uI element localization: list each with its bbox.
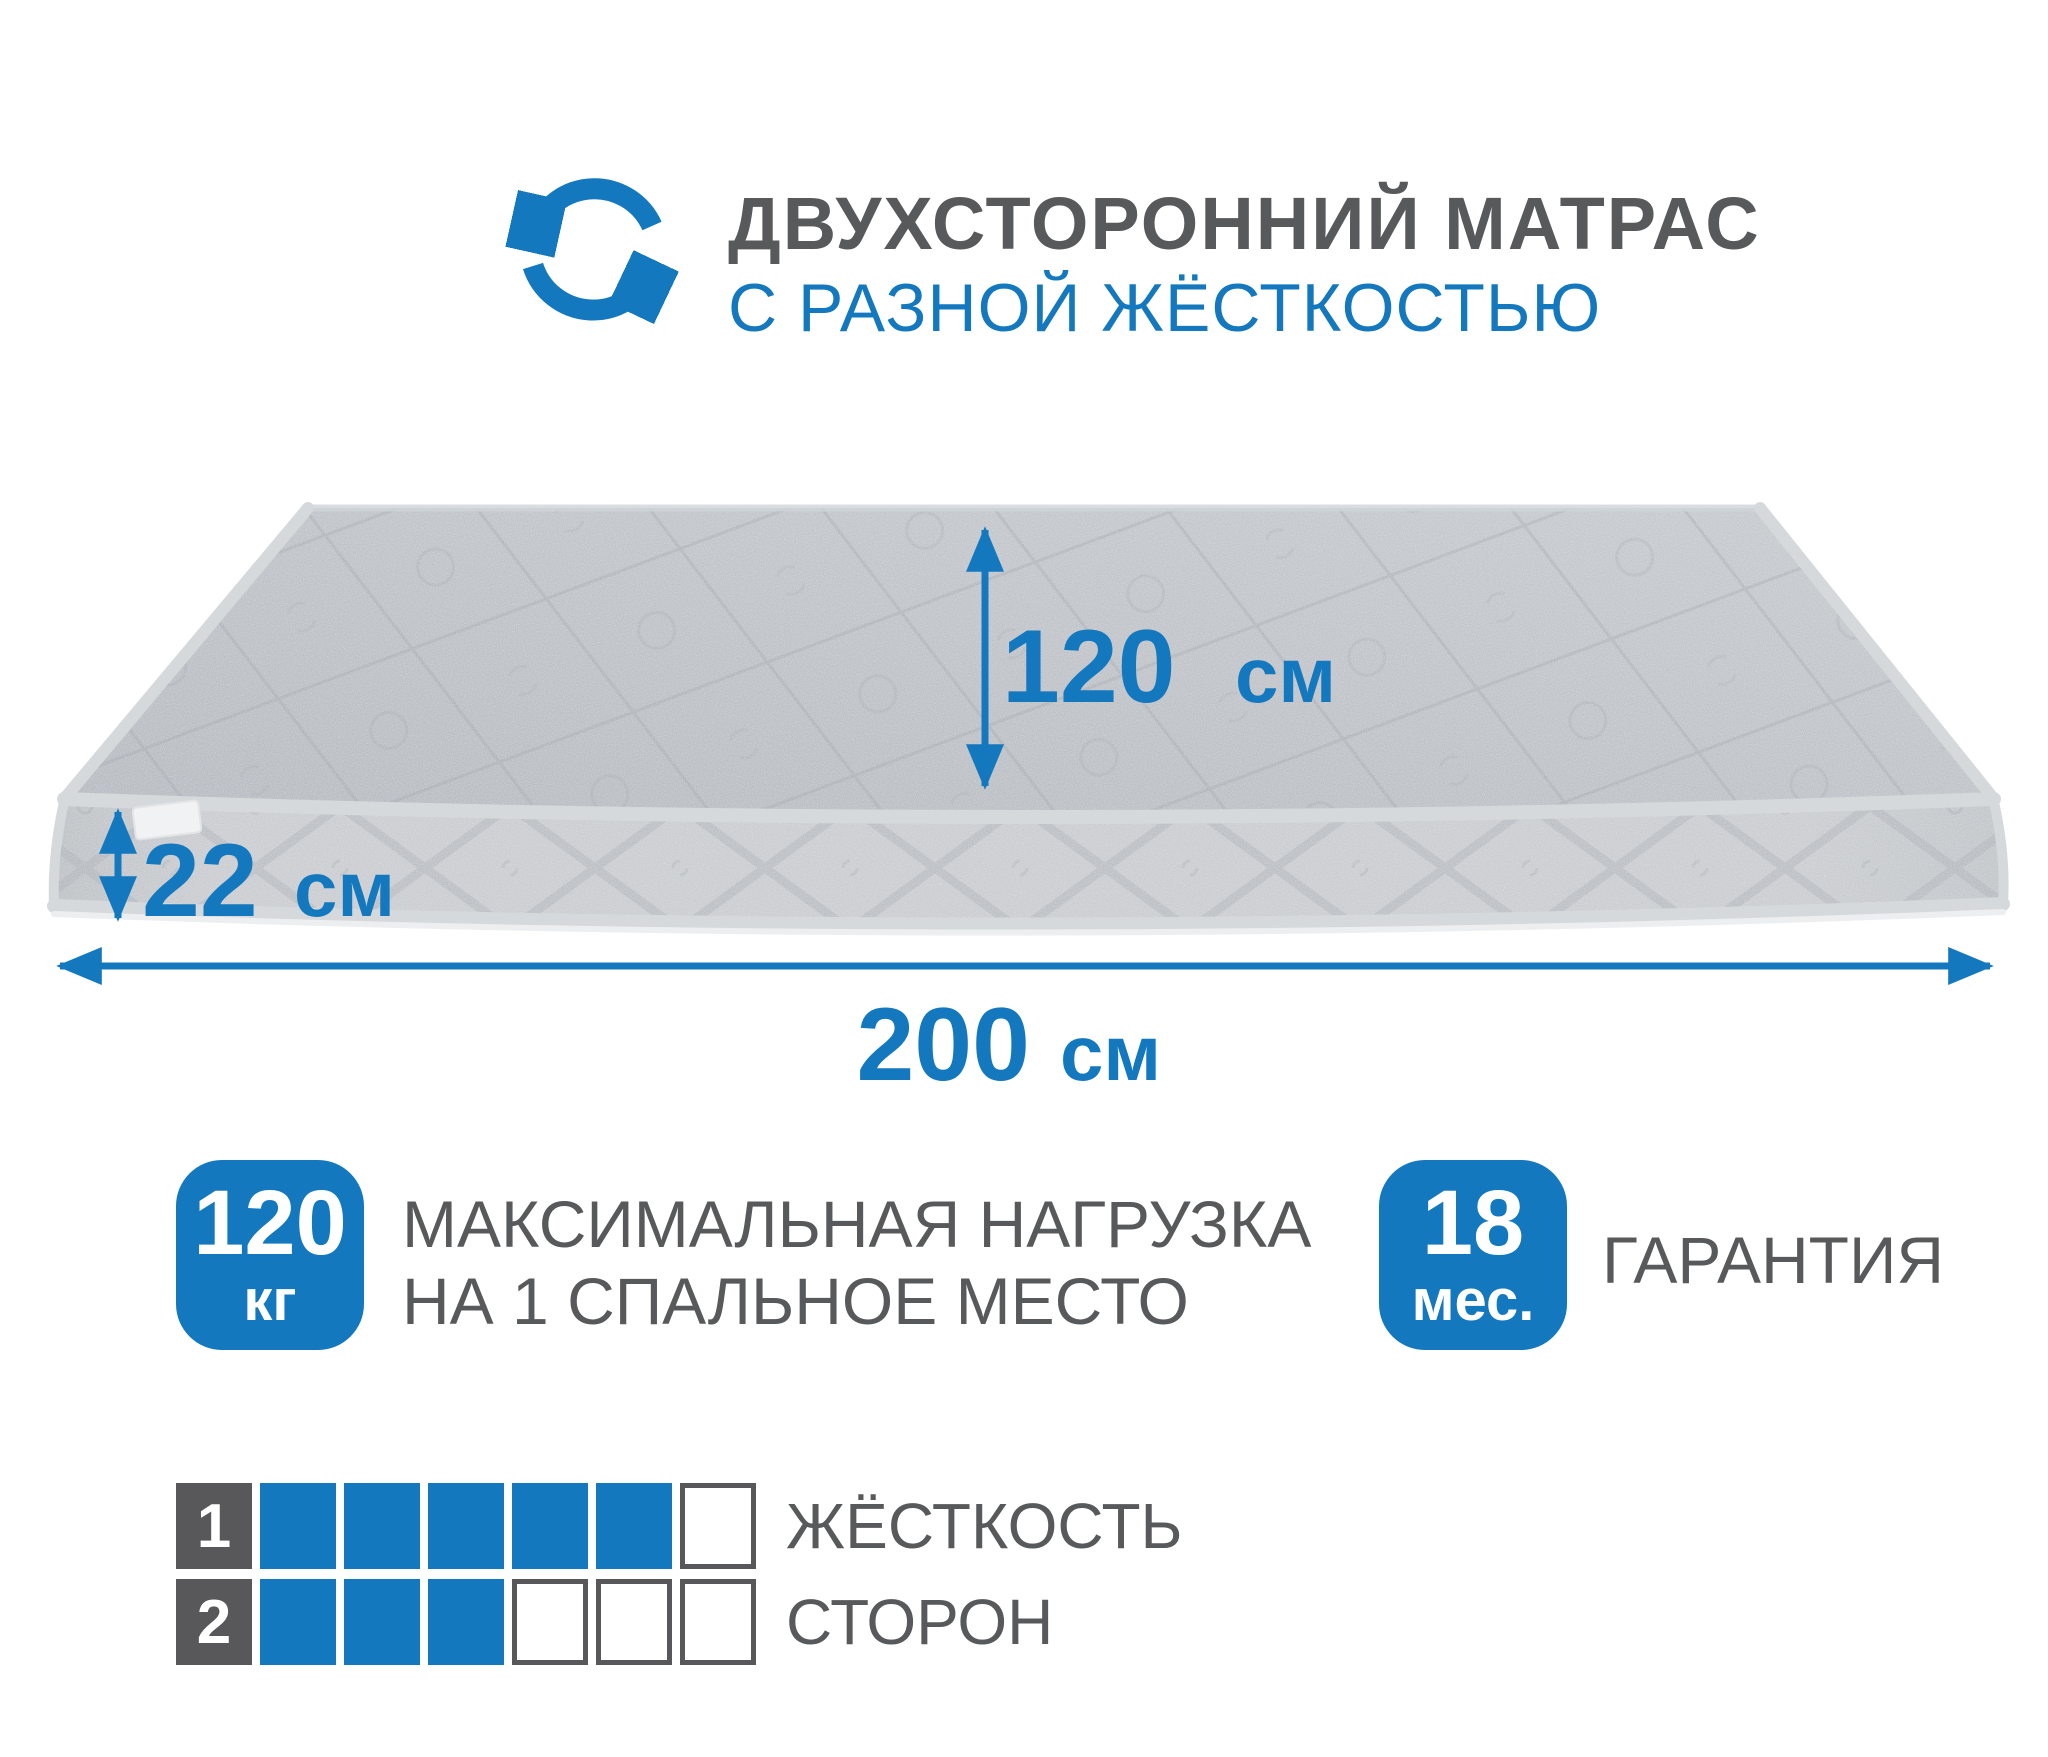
- mattress-infographic: ДВУХСТОРОННИЙ МАТРАС С РАЗНОЙ ЖЁСТКОСТЬЮ: [0, 0, 2048, 1757]
- firmness-label-line2: СТОРОН: [786, 1579, 1183, 1665]
- firmness-cell-filled: [260, 1483, 336, 1569]
- width-dimension-unit: см: [1235, 631, 1336, 719]
- firmness-cell-empty: [596, 1579, 672, 1665]
- max-load-unit: кг: [243, 1269, 296, 1333]
- thickness-dimension-value: 22: [142, 823, 258, 939]
- warranty-value: 18: [1422, 1177, 1524, 1269]
- max-load-label-line1: МАКСИМАЛЬНАЯ НАГРУЗКА: [402, 1186, 1311, 1263]
- firmness-label: ЖЁСТКОСТЬ СТОРОН: [786, 1483, 1183, 1675]
- length-dimension-value: 200: [856, 987, 1030, 1103]
- firmness-cell-filled: [260, 1579, 336, 1665]
- firmness-cell-filled: [344, 1483, 420, 1569]
- width-dimension-value: 120: [1002, 609, 1176, 725]
- max-load-label: МАКСИМАЛЬНАЯ НАГРУЗКА НА 1 СПАЛЬНОЕ МЕСТ…: [402, 1186, 1311, 1340]
- firmness-row: 1: [176, 1483, 756, 1569]
- warranty-badge: 18 мес.: [1379, 1160, 1567, 1350]
- firmness-cell-filled: [428, 1483, 504, 1569]
- firmness-cells: [260, 1579, 756, 1665]
- firmness-cell-filled: [428, 1579, 504, 1665]
- firmness-row: 2: [176, 1579, 756, 1665]
- firmness-cell-empty: [680, 1579, 756, 1665]
- max-load-badge: 120 кг: [176, 1160, 364, 1350]
- max-load-label-line2: НА 1 СПАЛЬНОЕ МЕСТО: [402, 1263, 1311, 1340]
- firmness-cell-filled: [344, 1579, 420, 1665]
- warranty-unit: мес.: [1412, 1269, 1535, 1333]
- firmness-section: 1 2: [176, 1483, 756, 1675]
- firmness-cells: [260, 1483, 756, 1569]
- thickness-dimension-unit: см: [294, 845, 395, 933]
- firmness-cell-filled: [512, 1483, 588, 1569]
- firmness-label-line1: ЖЁСТКОСТЬ: [786, 1483, 1183, 1569]
- firmness-cell-empty: [680, 1483, 756, 1569]
- firmness-cell-filled: [596, 1483, 672, 1569]
- length-dimension-unit: см: [1060, 1009, 1161, 1097]
- firmness-side-number: 1: [176, 1483, 252, 1569]
- firmness-cell-empty: [512, 1579, 588, 1665]
- firmness-side-number: 2: [176, 1579, 252, 1665]
- warranty-label: ГАРАНТИЯ: [1602, 1222, 1944, 1299]
- max-load-value: 120: [193, 1177, 347, 1269]
